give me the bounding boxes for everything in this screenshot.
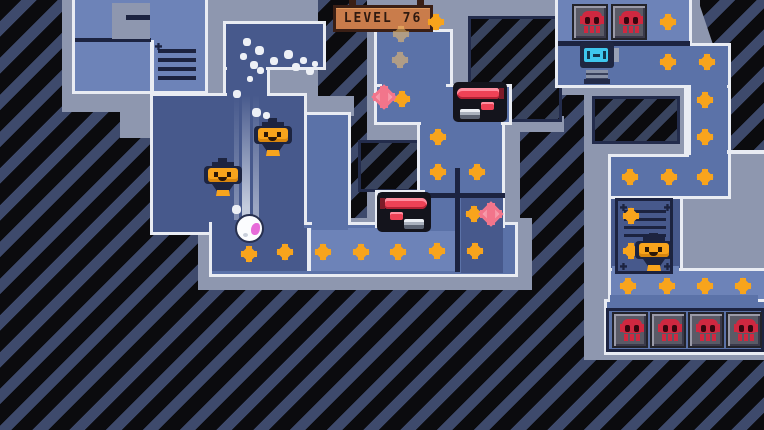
- floor-join: [312, 218, 348, 230]
- particle-puff: [255, 46, 264, 55]
- gem-orange-icon: [620, 278, 636, 294]
- particle-puff: [312, 61, 318, 67]
- gem-orange-icon: [315, 244, 331, 260]
- level-sign-label: LEVEL 76: [344, 11, 423, 26]
- gem-orange-icon: [735, 278, 751, 294]
- particle-puff: [247, 76, 253, 82]
- player-ball: [235, 214, 264, 243]
- gem-orange-icon: [697, 278, 713, 294]
- particle-puff: [252, 108, 261, 117]
- floor-join: [688, 82, 727, 91]
- gem-orange-icon: [467, 243, 483, 259]
- hazard-window-middle: [358, 140, 420, 192]
- gem-orange-icon: [697, 129, 713, 145]
- gem-orange-icon: [430, 129, 446, 145]
- gem-orange-icon: [277, 244, 293, 260]
- robot-enemy-icon: [579, 40, 621, 86]
- gem-orange-icon: [661, 169, 677, 185]
- vent-bar: [158, 67, 196, 71]
- border-segment: [150, 40, 154, 92]
- gem-dim-icon: [392, 52, 408, 68]
- particle-puff: [292, 63, 300, 71]
- gem-orange-icon: [697, 169, 713, 185]
- particle-puff: [284, 50, 293, 59]
- gem-pink-icon: [480, 203, 502, 225]
- floor-join: [689, 153, 728, 167]
- lantern-bot-icon: [634, 233, 674, 273]
- skull-tile-icon: [612, 312, 648, 348]
- gem-orange-icon: [660, 54, 676, 70]
- gem-orange-icon: [623, 208, 639, 224]
- particle-puff: [306, 67, 314, 75]
- vent-bar: [158, 76, 196, 80]
- particle-puff: [257, 67, 264, 74]
- level-sign: LEVEL 76: [333, 5, 433, 32]
- skull-tile-icon: [650, 312, 686, 348]
- vent-bar: [158, 58, 196, 62]
- shelf-slot: [126, 15, 150, 20]
- border-segment: [727, 150, 764, 154]
- gem-orange-icon: [241, 246, 257, 262]
- skull-tile-icon: [611, 4, 647, 40]
- gem-orange-icon: [394, 91, 410, 107]
- floor-join: [610, 295, 758, 305]
- magnet-machine-icon: [453, 82, 507, 122]
- gem-orange-icon: [390, 244, 406, 260]
- lantern-bot-icon: [203, 158, 243, 198]
- particle-puff: [263, 112, 270, 119]
- gem-pink-icon: [373, 86, 395, 108]
- gem-orange-icon: [699, 54, 715, 70]
- screw-icon: [620, 263, 627, 270]
- hazard-window-right: [592, 96, 680, 144]
- gem-orange-icon: [622, 169, 638, 185]
- gem-dim-icon: [393, 26, 409, 42]
- shelf-block: [112, 3, 150, 39]
- lantern-bot-icon: [253, 118, 293, 158]
- border-segment: [687, 85, 691, 155]
- floor-join: [227, 25, 266, 93]
- particle-puff: [233, 90, 241, 98]
- particle-puff: [243, 38, 251, 46]
- room-divider: [558, 41, 690, 46]
- vent-bar: [158, 49, 196, 53]
- skull-tile-icon: [688, 312, 724, 348]
- particle-puff: [232, 205, 241, 214]
- gem-orange-icon: [428, 14, 444, 30]
- floor-divider: [455, 168, 460, 272]
- game-viewport[interactable]: LEVEL 76: [0, 0, 764, 430]
- gem-orange-icon: [429, 243, 445, 259]
- gem-orange-icon: [469, 164, 485, 180]
- gem-orange-icon: [659, 278, 675, 294]
- skull-tile-icon: [572, 4, 608, 40]
- skull-tile-icon: [726, 312, 762, 348]
- particle-puff: [270, 57, 278, 65]
- gem-orange-icon: [660, 14, 676, 30]
- floor-bridge-corridor: [304, 112, 351, 225]
- gem-orange-icon: [697, 92, 713, 108]
- particle-puff: [240, 53, 247, 60]
- gem-orange-icon: [430, 164, 446, 180]
- wall-top-bridge: [516, 0, 544, 16]
- gem-orange-icon: [353, 244, 369, 260]
- magnet-machine-icon: [377, 192, 431, 232]
- particle-puff: [300, 57, 307, 64]
